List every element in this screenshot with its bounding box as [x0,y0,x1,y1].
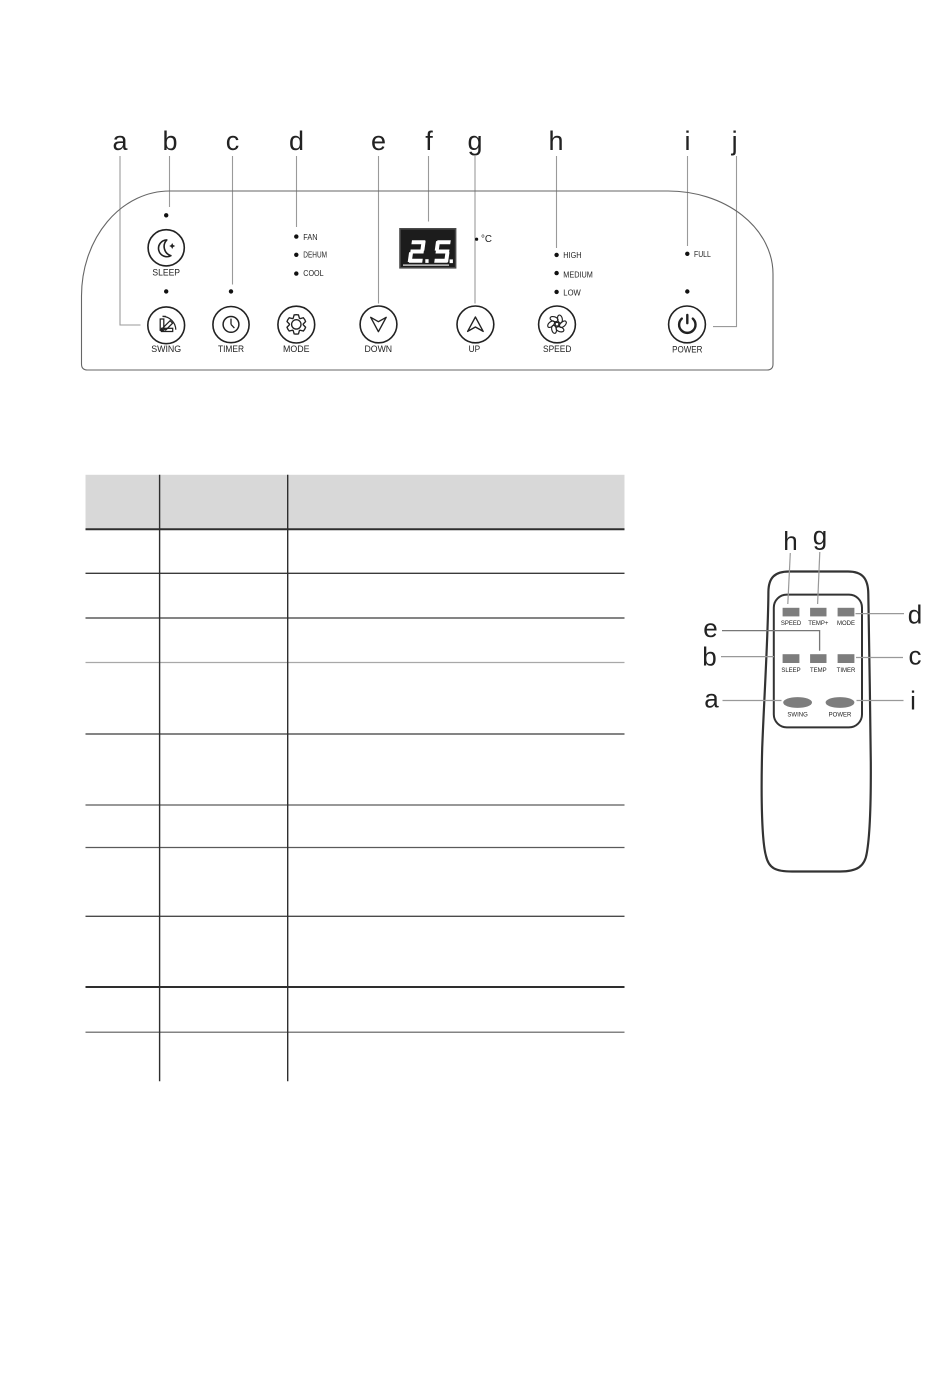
svg-text:d: d [289,126,304,156]
svg-text:TEMP+: TEMP+ [808,621,829,627]
svg-text:SPEED: SPEED [781,621,802,627]
svg-text:c: c [909,641,922,671]
svg-text:FAN: FAN [303,232,317,242]
svg-text:SWING: SWING [787,713,808,719]
svg-text:g: g [467,126,482,156]
svg-text:TEMP: TEMP [810,668,827,674]
svg-text:SPEED: SPEED [543,344,572,354]
svg-text:g: g [813,521,827,551]
svg-text:TIMER: TIMER [218,344,244,354]
svg-text:h: h [783,526,797,556]
svg-text:SLEEP: SLEEP [152,268,180,278]
svg-text:FULL: FULL [694,249,711,259]
svg-text:i: i [685,126,691,156]
svg-text:b: b [702,642,716,672]
svg-text:e: e [371,126,386,156]
svg-text:MEDIUM: MEDIUM [563,269,593,279]
svg-text:c: c [226,126,240,156]
svg-text:MODE: MODE [837,621,855,627]
svg-text:POWER: POWER [829,713,852,719]
svg-text:SWING: SWING [151,344,181,354]
svg-text:i: i [910,686,916,716]
svg-text:SLEEP: SLEEP [781,668,800,674]
svg-text:a: a [112,126,128,156]
svg-text:TIMER: TIMER [837,668,856,674]
svg-text:j: j [731,126,738,156]
svg-text:DOWN: DOWN [365,344,393,354]
svg-text:MODE: MODE [283,344,310,354]
svg-text:d: d [908,600,922,630]
svg-text:POWER: POWER [672,344,703,354]
svg-text:e: e [703,613,717,643]
svg-text:f: f [425,126,433,156]
svg-text:a: a [704,684,719,714]
svg-text:DEHUM: DEHUM [303,250,327,260]
svg-text:HIGH: HIGH [563,250,581,260]
svg-text:b: b [162,126,177,156]
svg-text:h: h [548,126,563,156]
svg-text:UP: UP [469,344,481,354]
svg-text:LOW: LOW [563,287,581,297]
svg-text:COOL: COOL [303,268,324,278]
svg-text:°C: °C [481,233,492,245]
